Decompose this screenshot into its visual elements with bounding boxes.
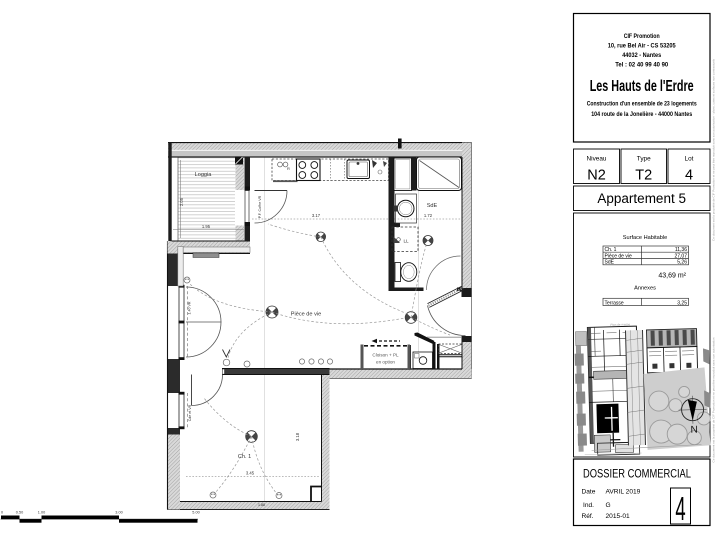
svg-text:4: 4 — [685, 168, 693, 184]
svg-text:3.17: 3.17 — [312, 213, 321, 218]
svg-text:en option: en option — [376, 360, 395, 365]
svg-text:Cloison + PL: Cloison + PL — [372, 353, 399, 358]
svg-text:Ce document est la propriété d: Ce document est la propriété de CIF Prom… — [712, 337, 716, 462]
svg-text:3.00: 3.00 — [115, 511, 122, 515]
svg-text:Les Hauts de l'Erdre: Les Hauts de l'Erdre — [590, 78, 694, 95]
svg-text:11,36: 11,36 — [675, 247, 687, 253]
svg-text:Ch. 1: Ch. 1 — [238, 454, 251, 460]
svg-text:1.00: 1.00 — [38, 511, 45, 515]
svg-text:Lot: Lot — [685, 156, 694, 163]
svg-text:2015-01: 2015-01 — [606, 513, 631, 520]
svg-text:Type: Type — [637, 156, 651, 163]
svg-text:Pièce de vie: Pièce de vie — [291, 312, 321, 318]
svg-text:Ce document est la propriété d: Ce document est la propriété de CIF Prom… — [712, 59, 716, 241]
svg-text:0: 0 — [1, 511, 3, 515]
svg-text:Construction d'un ensemble de: Construction d'un ensemble de 23 logemen… — [587, 101, 697, 108]
svg-text:1.95: 1.95 — [202, 224, 211, 229]
svg-text:Surface Habitable: Surface Habitable — [623, 235, 667, 241]
svg-text:CIF Promotion: CIF Promotion — [624, 33, 660, 40]
svg-text:Ind.: Ind. — [583, 502, 594, 509]
svg-text:Date: Date — [582, 489, 596, 496]
svg-text:DOSSIER COMMERCIAL: DOSSIER COMMERCIAL — [583, 469, 691, 481]
svg-text:N2: N2 — [587, 168, 606, 184]
svg-text:G: G — [606, 502, 611, 509]
svg-text:1.88: 1.88 — [258, 503, 265, 507]
svg-text:10, rue Bel Air - CS 53205: 10, rue Bel Air - CS 53205 — [608, 43, 676, 50]
svg-text:Ch. 1: Ch. 1 — [605, 247, 617, 253]
svg-text:1.72: 1.72 — [424, 213, 433, 218]
svg-text:43,69 m²: 43,69 m² — [658, 273, 686, 280]
svg-text:27,07: 27,07 — [674, 253, 687, 259]
svg-text:P.F. Coffre VR: P.F. Coffre VR — [258, 195, 262, 218]
svg-text:44032 - Nantes: 44032 - Nantes — [622, 52, 661, 59]
svg-text:Cde et VR: Cde et VR — [188, 404, 192, 421]
svg-text:Appartement 5: Appartement 5 — [597, 191, 686, 206]
svg-text:3.18: 3.18 — [295, 432, 300, 441]
svg-text:5.00: 5.00 — [192, 511, 199, 515]
svg-text:104 route de la Jonelière - 44: 104 route de la Jonelière - 44000 Nantes — [591, 111, 692, 118]
svg-text:Annexes: Annexes — [634, 286, 656, 292]
svg-text:LL: LL — [404, 239, 410, 244]
svg-text:Terrasse: Terrasse — [605, 300, 624, 306]
svg-text:SdE: SdE — [427, 203, 438, 209]
svg-text:N: N — [690, 425, 698, 436]
svg-text:Réf.: Réf. — [582, 513, 594, 520]
svg-text:T2: T2 — [635, 168, 652, 184]
svg-text:4: 4 — [675, 490, 685, 527]
svg-text:Tel : 02 40 99 40 90: Tel : 02 40 99 40 90 — [615, 62, 668, 69]
svg-text:3.45: 3.45 — [246, 471, 255, 476]
svg-text:0.50: 0.50 — [16, 511, 23, 515]
svg-text:Pièce de vie: Pièce de vie — [605, 253, 632, 259]
svg-text:1.40 VR: 1.40 VR — [188, 301, 192, 314]
svg-text:Loggia: Loggia — [195, 172, 213, 178]
svg-text:3,25: 3,25 — [677, 300, 687, 306]
svg-text:R: R — [287, 166, 290, 171]
svg-text:2.05: 2.05 — [179, 197, 184, 206]
svg-text:Niveau: Niveau — [587, 156, 607, 163]
svg-text:SdE: SdE — [605, 260, 615, 266]
svg-text:AVRIL 2019: AVRIL 2019 — [606, 489, 641, 496]
svg-text:5,26: 5,26 — [677, 260, 687, 266]
